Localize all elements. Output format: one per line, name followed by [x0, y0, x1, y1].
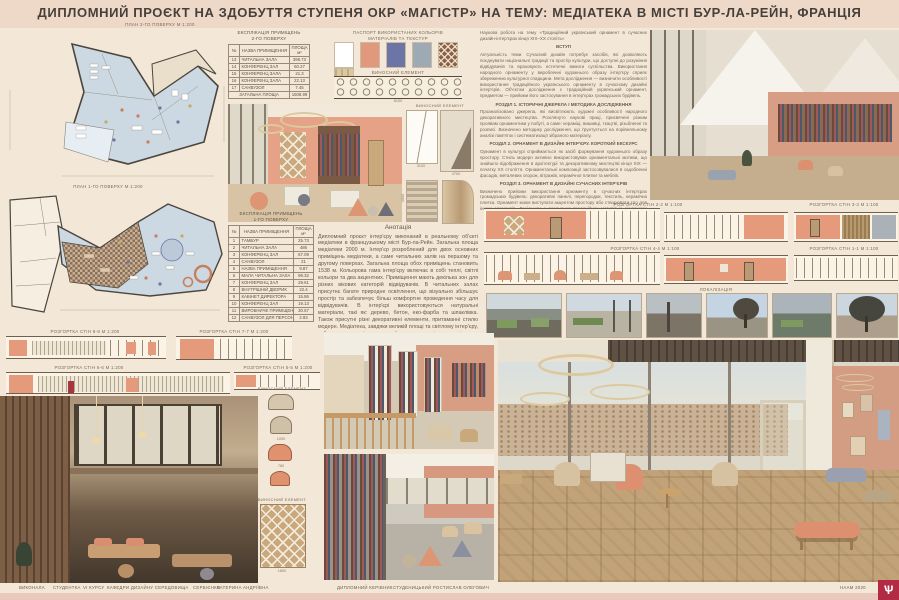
col-num: №: [229, 225, 240, 237]
cell: 14: [229, 63, 240, 70]
footer-department: КАФЕДРИ ДИЗАЙНУ СЕРЕДОВИЩА: [107, 585, 189, 590]
palette-title-2: МАТЕРІАЛІВ ТА ТЕКСТУР: [368, 36, 428, 41]
footer-supervisor-label: ДИПЛОМНИЙ КЕРІВНИК: [337, 585, 393, 590]
table-row: 8ВНУТРІШНІЙ ДВОРИК22.4: [229, 286, 314, 293]
col-area-2: м²: [301, 231, 305, 236]
daybed: [864, 490, 894, 502]
photo-detail: [573, 318, 603, 325]
armchair: [828, 166, 843, 176]
cell: САНВУЗОЛ ДЛЯ ПЕРСОНАЛУ: [240, 314, 294, 321]
pendant-light: [138, 432, 147, 438]
door: [684, 262, 694, 281]
footer-bar: [0, 593, 899, 600]
elevation-mid-row1: [664, 212, 788, 242]
cell: 4: [229, 258, 240, 265]
total-label: ЗАГАЛЬНА ПЛОЩА: [229, 91, 290, 98]
furniture-silhouette: [554, 270, 566, 280]
col-area-2: м²: [297, 50, 301, 55]
cell: КОНФЕРЕНЦ ЗАЛА: [240, 70, 290, 77]
plant: [742, 150, 752, 166]
armchair-beige: [554, 462, 580, 486]
art-frame: [842, 402, 854, 418]
wall-bookshelf: [452, 363, 486, 397]
panel-details-label: ВИНОСНИЙ ЕЛЕМЕНТ: [404, 103, 476, 108]
sphere-pouf: [368, 206, 378, 216]
elevation-mid-row2: [664, 255, 788, 284]
window-band: [228, 104, 268, 196]
table2-title: ЕКСПЛІКАЦІЯ ПРИМІЩЕНЬ 2-ГО ПОВЕРХУ: [228, 30, 310, 42]
furniture-silhouette: [580, 273, 598, 280]
cell: САНВУЗОЛ: [240, 84, 290, 91]
railing-ornament-drawing: [334, 76, 462, 99]
round-table: [658, 488, 682, 496]
annotation-text: Дипломний проєкт інтер'єру виконаний в р…: [318, 234, 478, 333]
site-photo: [836, 293, 898, 338]
bookcase-tower: [424, 357, 442, 413]
stone-wall: [498, 404, 788, 456]
site-photo: [486, 293, 562, 338]
site-photo: [646, 293, 702, 338]
plan-2nd-floor: [2, 30, 228, 186]
footer-name: КАТЕРИНА: [217, 585, 242, 590]
footer-course: VI КУРСУ: [83, 585, 104, 590]
photo-detail: [613, 300, 615, 332]
table2-title-2: 2-ГО ПОВЕРХУ: [252, 36, 287, 41]
cell: 22.13: [290, 77, 310, 84]
plan1-left-wing: [10, 196, 64, 312]
pendant-cord: [96, 396, 97, 438]
railing-detail-label: ВИНОСНИЙ ЕЛЕМЕНТ: [334, 70, 462, 75]
wood-slat-wall: [0, 396, 70, 583]
art-frame: [860, 394, 873, 412]
cell: КОНФЕРЕНЦ ЗАЛ: [240, 63, 290, 70]
site-photo: [772, 293, 832, 338]
table-total-row: ЗАГАЛЬНА ПЛОЩА1508.99: [229, 91, 310, 98]
console-shelf: [590, 452, 626, 482]
table-row: 16КОНФЕРЕНЦ ЗАЛА22.13: [229, 77, 310, 84]
pendant-light: [92, 438, 101, 444]
section-label-5-5: РОЗГОРТКА СТІН 5-5 М 1:200: [236, 365, 320, 370]
door: [744, 262, 754, 281]
explication-table-floor2: ЕКСПЛІКАЦІЯ ПРИМІЩЕНЬ 2-ГО ПОВЕРХУ № НАЗ…: [228, 30, 310, 99]
curved-panel-detail: [442, 180, 474, 224]
table2: № НАЗВА ПРИМІЩЕННЯ ПЛОЩАм² 13ЧИТАЛЬНА ЗА…: [228, 44, 310, 99]
research-paragraph: Орнамент в культурі сприймається як засі…: [480, 149, 647, 179]
photo-detail: [531, 318, 549, 327]
armchair-detail-front: [268, 394, 294, 410]
cell: 6: [229, 272, 240, 279]
ring-chandelier-small: [842, 384, 874, 391]
cell: 9.87: [294, 265, 314, 272]
site-photo: [706, 293, 768, 338]
side-shelving: [324, 355, 364, 413]
sofa: [708, 170, 736, 180]
elevation-1-1: [794, 255, 898, 281]
cell: НАЗВА ПРИМІЩЕННЯ: [240, 265, 294, 272]
sphere-pouf: [250, 192, 268, 210]
swatch-ornament-tile: [438, 42, 458, 68]
render-main-reading-hall: [498, 340, 899, 582]
window-band: [386, 478, 494, 504]
cell: 11: [229, 307, 240, 314]
armchair-detail-side: [270, 416, 292, 434]
research-heading-2: РОЗДІЛ 2. ОРНАМЕНТ В ДИЗАЙНІ ІНТЕР'ЄРУ. …: [480, 141, 647, 147]
window-wall: [650, 30, 706, 158]
chair-details-label: ВИНОСНИЙ ЕЛЕМЕНТ: [254, 386, 310, 391]
door: [550, 217, 562, 239]
table-row: 17САНВУЗОЛ7.45: [229, 84, 310, 91]
red-door: [68, 381, 74, 393]
render-shelf-beanbags: [324, 454, 494, 580]
cell: 7: [229, 279, 240, 286]
plan2-caption: ПЛАН 2-ГО ПОВЕРХУ М 1:200: [100, 22, 220, 27]
cell: 22.4: [294, 286, 314, 293]
cell: 13: [229, 56, 240, 63]
cell: МАЛА ЧИТАЛЬНА ЗАЛА: [240, 272, 294, 279]
explication-table-floor1: ЕКСПЛІКАЦІЯ ПРИМІЩЕНЬ 1-ГО ПОВЕРХУ № НАЗ…: [228, 211, 314, 322]
col-num: №: [229, 44, 240, 56]
pouf: [118, 564, 134, 578]
photo-detail: [629, 300, 631, 332]
ring-chandelier: [520, 392, 570, 406]
col-area: ПЛОЩАм²: [294, 225, 314, 237]
salmon-wall-elev: [180, 339, 214, 359]
stripe-fabric-detail: [406, 180, 438, 222]
research-lead: Наукова робота на тему «Традиційний укра…: [480, 30, 647, 42]
elevation-8-8: [6, 336, 166, 359]
col-name: НАЗВА ПРИМІЩЕННЯ: [240, 225, 294, 237]
photo-detail: [497, 320, 517, 328]
cell: КОНФЕРЕНЦ ЗАЛ: [240, 251, 294, 258]
door: [368, 140, 384, 186]
annotation-block: Анотація Дипломний проєкт інтер'єру вико…: [318, 224, 478, 332]
photo-detail: [781, 320, 803, 327]
cell: ЧИТАЛЬНА ЗАЛА: [240, 244, 294, 251]
swatch-blue-violet: [386, 42, 406, 68]
curtain-detail: [406, 110, 438, 164]
shade-detail: [440, 110, 474, 172]
annotation-title: Анотація: [318, 224, 478, 231]
table-row: 2ЧИТАЛЬНА ЗАЛА486: [229, 244, 314, 251]
cell: 9: [229, 293, 240, 300]
armchair: [442, 526, 458, 537]
salmon-wall-elev: [236, 375, 256, 387]
cell: 12: [229, 314, 240, 321]
chair-dim-2: 780: [266, 464, 296, 468]
render-attic-reading-hall: [650, 30, 899, 200]
salmon-wall-elev: [126, 378, 138, 392]
academy-logo: Ѱ: [878, 580, 899, 600]
colonnade: [666, 215, 740, 239]
tall-mirror: [878, 410, 890, 440]
cushion: [94, 538, 112, 546]
photo-detail: [667, 302, 670, 332]
colonnade: [220, 339, 288, 359]
cell: 2: [229, 244, 240, 251]
swatch-white: [334, 42, 354, 68]
cell: 1: [229, 237, 240, 244]
table-row: 11ВИРОБНИЧЕ ПРИМІЩЕННЯ30.57: [229, 307, 314, 314]
cell: 29.61: [294, 279, 314, 286]
salmon-wall-elev: [148, 342, 156, 355]
cell: 7.45: [290, 84, 310, 91]
table-row: 13ЧИТАЛЬНА ЗАЛА396.73: [229, 56, 310, 63]
bench: [88, 544, 160, 558]
elevation-4-4: [484, 252, 660, 285]
cell: 21: [294, 258, 314, 265]
section-label-8-8: РОЗГОРТКА СТІН 8-8 М 1:200: [20, 329, 150, 334]
cell: 10: [229, 300, 240, 307]
bookcase-tower: [398, 351, 418, 417]
armchair: [798, 160, 813, 170]
bookshelf: [778, 104, 892, 142]
swatch-salmon: [360, 42, 380, 68]
armchair: [464, 522, 482, 534]
bench-leg: [800, 538, 803, 550]
cell: 99.32: [294, 272, 314, 279]
glazing-grid: [32, 341, 106, 355]
cell: 25.73: [294, 237, 314, 244]
wood-railing-balusters: [324, 415, 416, 449]
sphere-pouf: [402, 554, 416, 568]
col-name: НАЗВА ПРИМІЩЕННЯ: [240, 44, 290, 56]
bench: [172, 554, 232, 567]
site-photo: [566, 293, 642, 338]
cell: 15.86: [294, 293, 314, 300]
section-label-4-4: РОЗГОРТКА СТІН 4-4 М 1:100: [590, 246, 700, 251]
art-frame: [720, 264, 728, 272]
table-row: 12САНВУЗОЛ ДЛЯ ПЕРСОНАЛУ2.93: [229, 314, 314, 321]
research-paragraph: Проаналізовано джерела, які висвітлюють …: [480, 109, 647, 139]
cell: ВИРОБНИЧЕ ПРИМІЩЕННЯ: [240, 307, 294, 314]
door: [810, 219, 820, 237]
chair-dim-1: 1000: [266, 437, 296, 441]
furniture-silhouette: [498, 271, 512, 280]
salmon-wall-elev: [9, 375, 33, 393]
footer-academy-year: НААМ 2020: [840, 585, 866, 590]
cell: САНВУЗОЛ: [240, 258, 294, 265]
cell: 486: [294, 244, 314, 251]
ring-chandelier-small: [836, 374, 874, 382]
cell: КОНФЕРЕНЦ ЗАЛ: [240, 300, 294, 307]
tall-metal-bookshelf: [324, 454, 386, 580]
cell: ВНУТРІШНІЙ ДВОРИК: [240, 286, 294, 293]
armchair-detail-salmon: [268, 444, 292, 461]
section-label-7-7: РОЗГОРТКА СТІН 7-7 М 1:200: [178, 329, 290, 334]
wood-slat-band: [842, 215, 870, 239]
elevation-2-2: [484, 208, 660, 242]
armchair-detail-salmon-side: [270, 471, 290, 486]
ornament-patch: [504, 216, 524, 235]
research-text: Наукова робота на тему «Традиційний укра…: [480, 30, 647, 212]
side-table: [500, 474, 522, 484]
tree-trunk: [865, 316, 868, 332]
bookcase-tower: [368, 345, 392, 421]
cell: 30.57: [294, 307, 314, 314]
plan-1st-floor: [0, 192, 230, 324]
cell: ЧИТАЛЬНА ЗАЛА: [240, 56, 290, 63]
cell: 21.3: [290, 70, 310, 77]
shade-dim: 4700: [440, 172, 472, 176]
cell: КАБІНЕТ ДИРЕКТОРА: [240, 293, 294, 300]
pouf: [200, 568, 214, 580]
research-heading-3: РОЗДІЛ 3. ОРНАМЕНТ В ДИЗАЙНІ СУЧАСНИХ ІН…: [480, 181, 647, 187]
section-label-6-6: РОЗГОРТКА СТІН 6-6 М 1:200: [24, 365, 154, 370]
ornament-details-label: ВИНОСНИЙ ЕЛЕМЕНТ: [252, 497, 312, 502]
armchair: [460, 429, 478, 442]
curtain-dim: 3100: [406, 164, 436, 168]
ornament-dim: 1800: [258, 569, 306, 573]
cell: 19.13: [294, 300, 314, 307]
table-row: 6МАЛА ЧИТАЛЬНА ЗАЛА99.32: [229, 272, 314, 279]
cell: 5: [229, 265, 240, 272]
research-heading-1: РОЗДІЛ 1. ІСТОРИЧНІ ДЖЕРЕЛА І МЕТОДИКА Д…: [480, 102, 647, 108]
sphere-pouf: [298, 194, 310, 206]
table-header-row: № НАЗВА ПРИМІЩЕННЯ ПЛОЩАм²: [229, 225, 314, 237]
ring-chandelier: [538, 354, 614, 376]
stripe-dim: 4000: [401, 193, 405, 203]
ornament-lattice-detail: [260, 504, 306, 568]
cell: 15: [229, 70, 240, 77]
bench-leg: [850, 538, 853, 550]
colonnade: [796, 258, 896, 278]
plant: [16, 542, 32, 566]
table1-title-2: 1-ГО ПОВЕРХУ: [254, 217, 289, 222]
cell: КОНФЕРЕНЦ ЗАЛ: [240, 279, 294, 286]
table1-title-1: ЕКСПЛІКАЦІЯ ПРИМІЩЕНЬ: [239, 211, 302, 216]
col-area: ПЛОЩАм²: [290, 44, 310, 56]
salmon-wall-elev: [744, 215, 784, 239]
table-row: 1ТАМБУР25.73: [229, 237, 314, 244]
diploma-poster: ДИПЛОМНИЙ ПРОЄКТ НА ЗДОБУТТЯ СТУПЕНЯ ОКР…: [0, 0, 899, 600]
elevation-3-3: [794, 212, 898, 242]
table-row: 15КОНФЕРЕНЦ ЗАЛА21.3: [229, 70, 310, 77]
gray-block: [872, 215, 896, 239]
elevation-6-6: [6, 372, 230, 394]
render-wood-slat-lounge: [0, 396, 258, 583]
plan1-round-zone: [161, 239, 183, 261]
cell: 16: [229, 77, 240, 84]
shade-triangle: [451, 127, 471, 169]
localization-label: ЛОКАЛІЗАЦІЯ: [666, 287, 766, 292]
salmon-wall-elev: [126, 342, 136, 354]
pendant-cord: [142, 396, 143, 432]
table-row: 14КОНФЕРЕНЦ ЗАЛ60.27: [229, 63, 310, 70]
table1-title: ЕКСПЛІКАЦІЯ ПРИМІЩЕНЬ 1-ГО ПОВЕРХУ: [228, 211, 314, 223]
mezzanine-rail: [70, 468, 258, 474]
elevation-7-7: [176, 336, 292, 360]
wood-railing-bar: [324, 413, 416, 418]
section-label-3-3: РОЗГОРТКА СТІН 3-3 М 1:100: [790, 202, 898, 207]
art-frame: [850, 436, 866, 456]
trident-icon: Ѱ: [884, 583, 894, 597]
cell: 8: [229, 286, 240, 293]
armchair-beige: [712, 462, 738, 486]
cell: 396.73: [290, 56, 310, 63]
section-label-1-1: РОЗГОРТКА СТІН 1-1 М 1:100: [790, 246, 898, 251]
table-row: 4САНВУЗОЛ21: [229, 258, 314, 265]
salmon-wall-elev: [9, 340, 27, 356]
floor: [650, 156, 899, 200]
research-heading-intro: ВСТУП: [480, 44, 647, 50]
table-row: 3КОНФЕРЕНЦ ЗАЛ67.09: [229, 251, 314, 258]
footer-performed: ВИКОНАЛА: [19, 585, 45, 590]
tree-trunk: [744, 314, 747, 328]
footer-patronymic: АНДРІЇВНА: [243, 585, 269, 590]
render-bookcase-railing: [324, 333, 494, 449]
bookshelf: [318, 126, 360, 184]
cell: 3: [229, 251, 240, 258]
research-paragraph: Актуальність теми. Сучасний дизайн потре…: [480, 52, 647, 100]
palette-title-1: ПАСПОРТ ВИКОРИСТАНИХ КОЛЬОРІВ: [353, 30, 443, 35]
table-header-row: № НАЗВА ПРИМІЩЕННЯ ПЛОЩАм²: [229, 44, 310, 56]
colonnade: [590, 211, 656, 239]
table-row: 9КАБІНЕТ ДИРЕКТОРА15.86: [229, 293, 314, 300]
footer-supervisor-name: СТУДЕНИЦЬКИЙ РОСТИСЛАВ ОЛЕГОВИЧ: [393, 585, 489, 590]
table-row: 7КОНФЕРЕНЦ ЗАЛ29.61: [229, 279, 314, 286]
furniture-silhouette: [524, 273, 540, 280]
ornament-panel: [280, 132, 306, 178]
bench-salmon: [794, 522, 860, 538]
footer-student: СТУДЕНТКА: [53, 585, 81, 590]
cell: КОНФЕРЕНЦ ЗАЛА: [240, 77, 290, 84]
table-leg: [666, 494, 668, 508]
cell: 67.09: [294, 251, 314, 258]
table-row: 5НАЗВА ПРИМІЩЕННЯ9.87: [229, 265, 314, 272]
table-row: 10КОНФЕРЕНЦ ЗАЛ19.13: [229, 300, 314, 307]
furniture-silhouette: [610, 271, 623, 280]
section-label-2-2: РОЗГОРТКА СТІН 2-2 М 1:100: [598, 202, 698, 207]
sofa: [428, 425, 452, 441]
cell: 2.93: [294, 314, 314, 321]
render-salmon-reading-room: [228, 104, 402, 222]
swatch-gray-blue: [412, 42, 432, 68]
cell: 60.27: [290, 63, 310, 70]
cell: ТАМБУР: [240, 237, 294, 244]
cushion: [126, 538, 144, 546]
salmon-wall-elev: [486, 211, 586, 239]
lounge-chairs-blue: [826, 468, 866, 482]
table1: № НАЗВА ПРИМІЩЕННЯ ПЛОЩАм² 1ТАМБУР25.73 …: [228, 225, 314, 322]
ring-chandelier: [590, 384, 650, 400]
palette-title: ПАСПОРТ ВИКОРИСТАНИХ КОЛЬОРІВ МАТЕРІАЛІВ…: [333, 30, 463, 42]
table2-title-1: ЕКСПЛІКАЦІЯ ПРИМІЩЕНЬ: [237, 30, 300, 35]
cell: 17: [229, 84, 240, 91]
total-value: 1508.99: [290, 91, 310, 98]
